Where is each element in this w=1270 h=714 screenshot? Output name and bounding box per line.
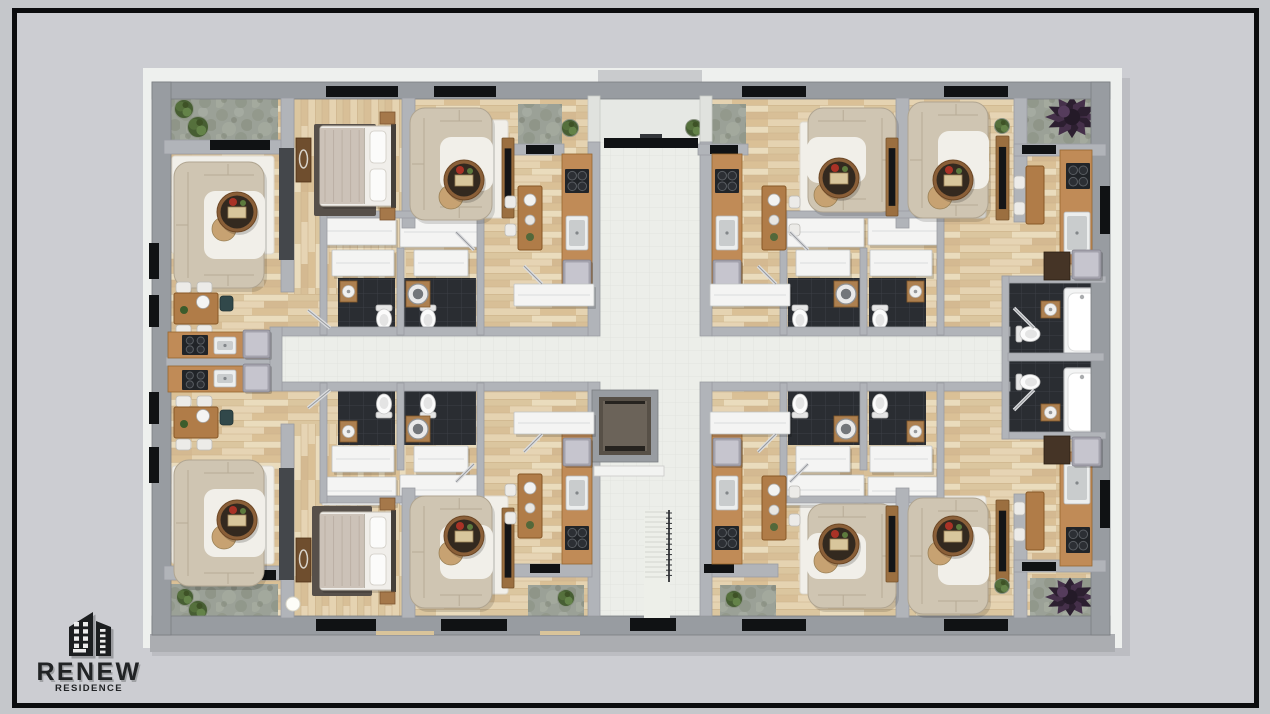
svg-text:RESIDENCE: RESIDENCE — [55, 683, 123, 694]
svg-text:RENEW: RENEW — [36, 658, 141, 686]
